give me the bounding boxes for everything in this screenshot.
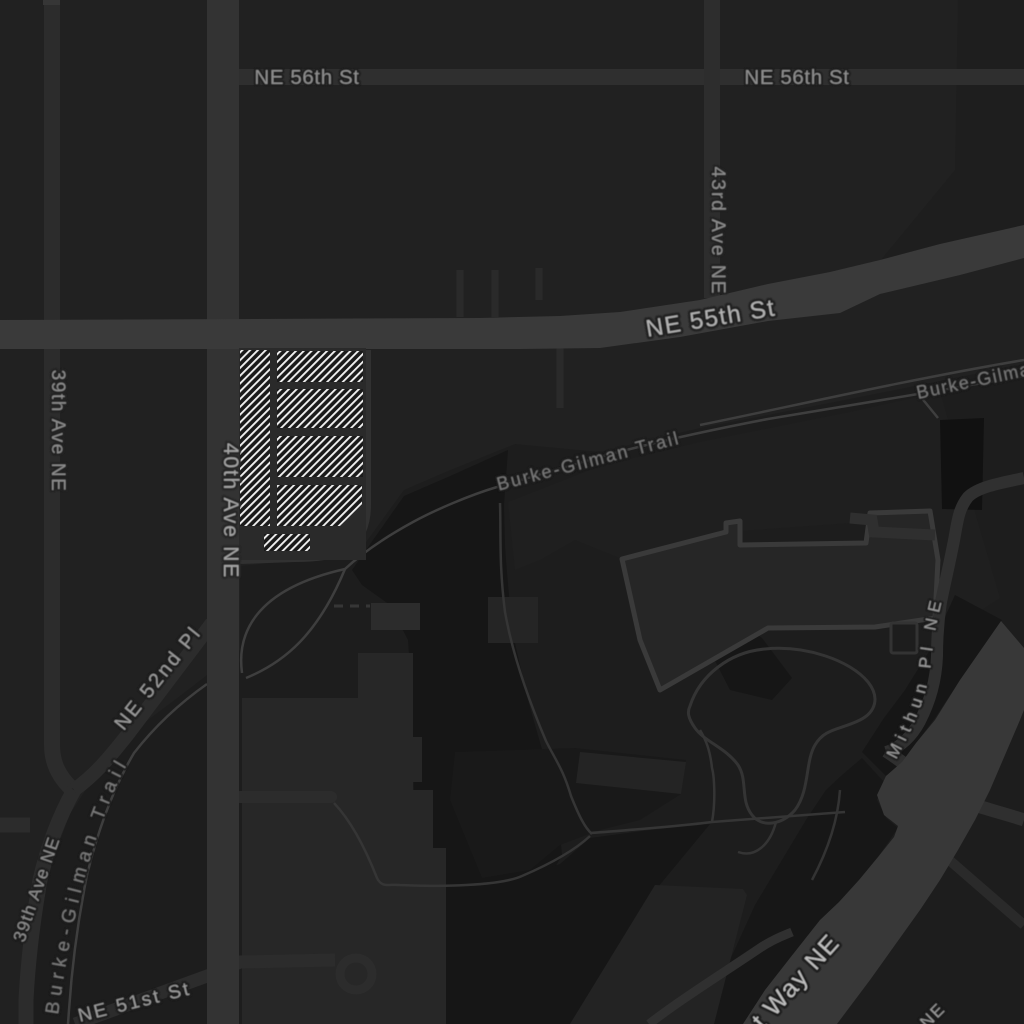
- svg-text:40th Ave NE: 40th Ave NE: [219, 443, 242, 579]
- svg-text:NE 56th St: NE 56th St: [254, 66, 359, 89]
- svg-text:39th Ave NE: 39th Ave NE: [47, 370, 68, 493]
- svg-text:43rd Ave NE: 43rd Ave NE: [707, 167, 729, 296]
- svg-text:NE 56th St: NE 56th St: [744, 66, 849, 89]
